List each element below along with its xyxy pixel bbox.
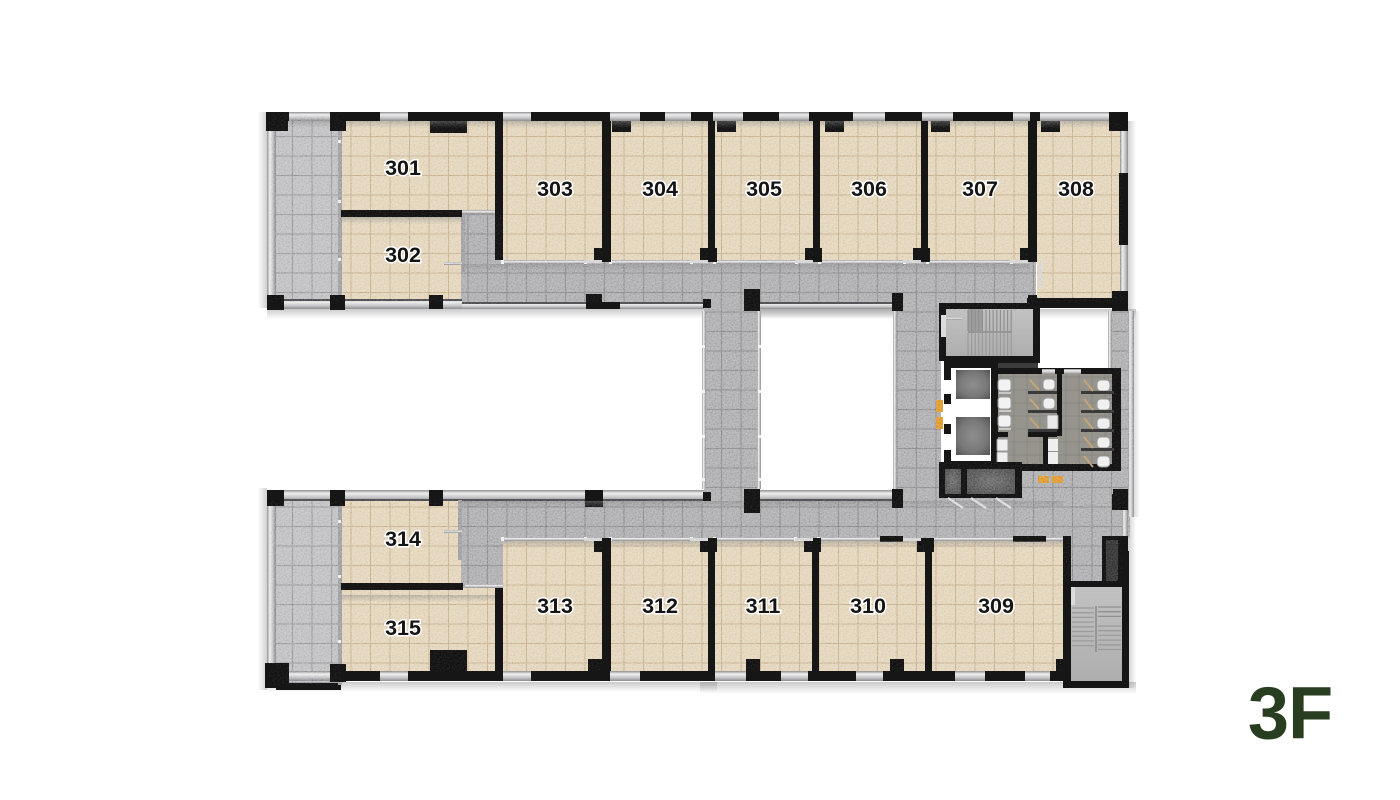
svg-text:306: 306 <box>851 177 887 201</box>
svg-text:301: 301 <box>385 156 421 180</box>
svg-text:307: 307 <box>962 177 998 201</box>
svg-text:312: 312 <box>642 594 678 618</box>
svg-text:315: 315 <box>385 616 421 640</box>
svg-text:313: 313 <box>537 594 573 618</box>
svg-text:309: 309 <box>978 594 1014 618</box>
svg-text:305: 305 <box>746 177 782 201</box>
svg-text:308: 308 <box>1058 177 1094 201</box>
svg-text:303: 303 <box>537 177 573 201</box>
svg-text:311: 311 <box>746 594 781 618</box>
svg-text:304: 304 <box>642 177 678 201</box>
svg-text:3F: 3F <box>1248 672 1332 755</box>
svg-text:302: 302 <box>385 243 421 267</box>
svg-text:314: 314 <box>385 527 421 551</box>
svg-text:310: 310 <box>850 594 886 618</box>
